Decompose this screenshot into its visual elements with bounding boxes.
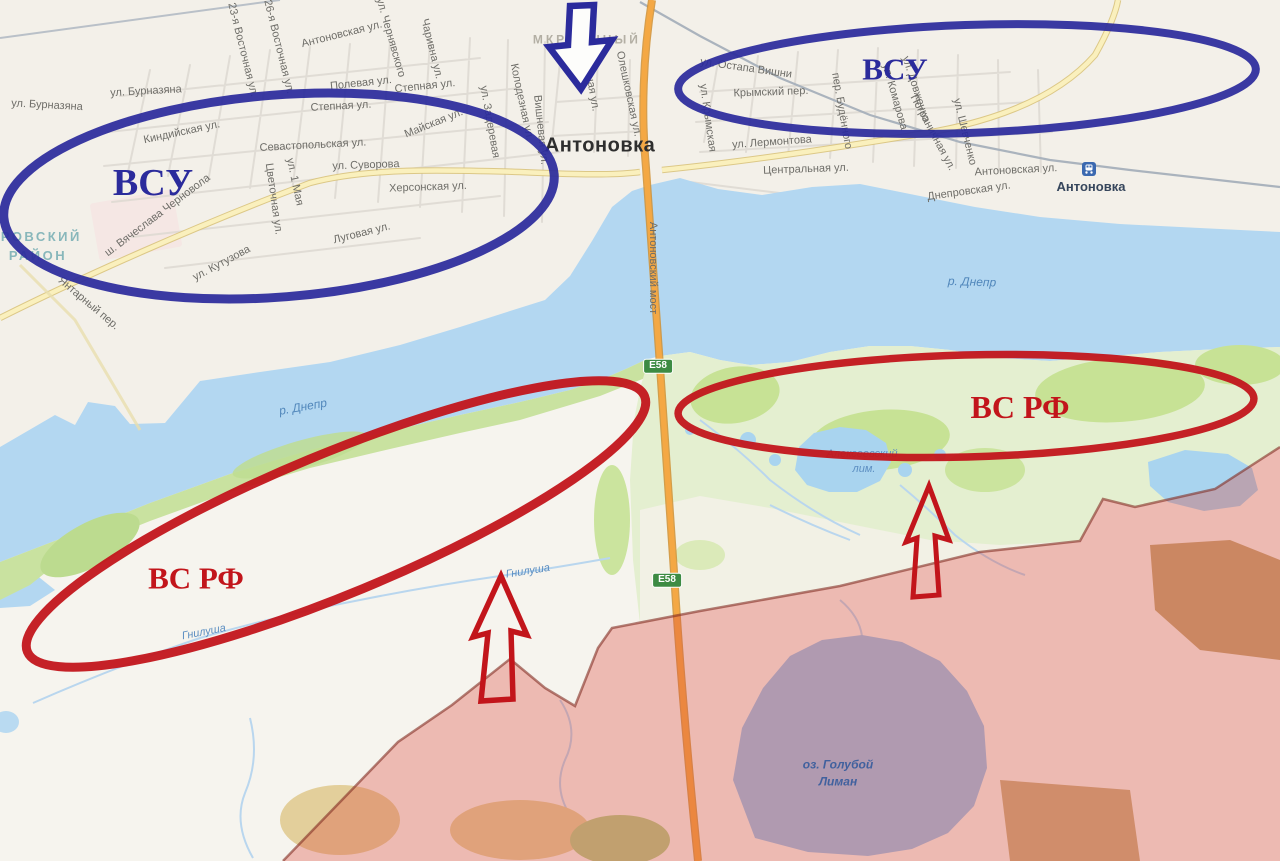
vsu-east-ellipse [676, 15, 1257, 143]
vsu-west-ellipse [0, 74, 562, 319]
vsrf-west-ellipse [1, 332, 672, 717]
red-arrow-up-east [906, 486, 949, 597]
military-annotations-layer [0, 0, 1280, 861]
blue-arrow-down [549, 5, 612, 89]
red-arrow-up-west [473, 576, 527, 701]
map-canvas[interactable]: ул. Бурназянаул. БурназянаКиндийская ул.… [0, 0, 1280, 861]
vsrf-east-ellipse [677, 347, 1255, 464]
